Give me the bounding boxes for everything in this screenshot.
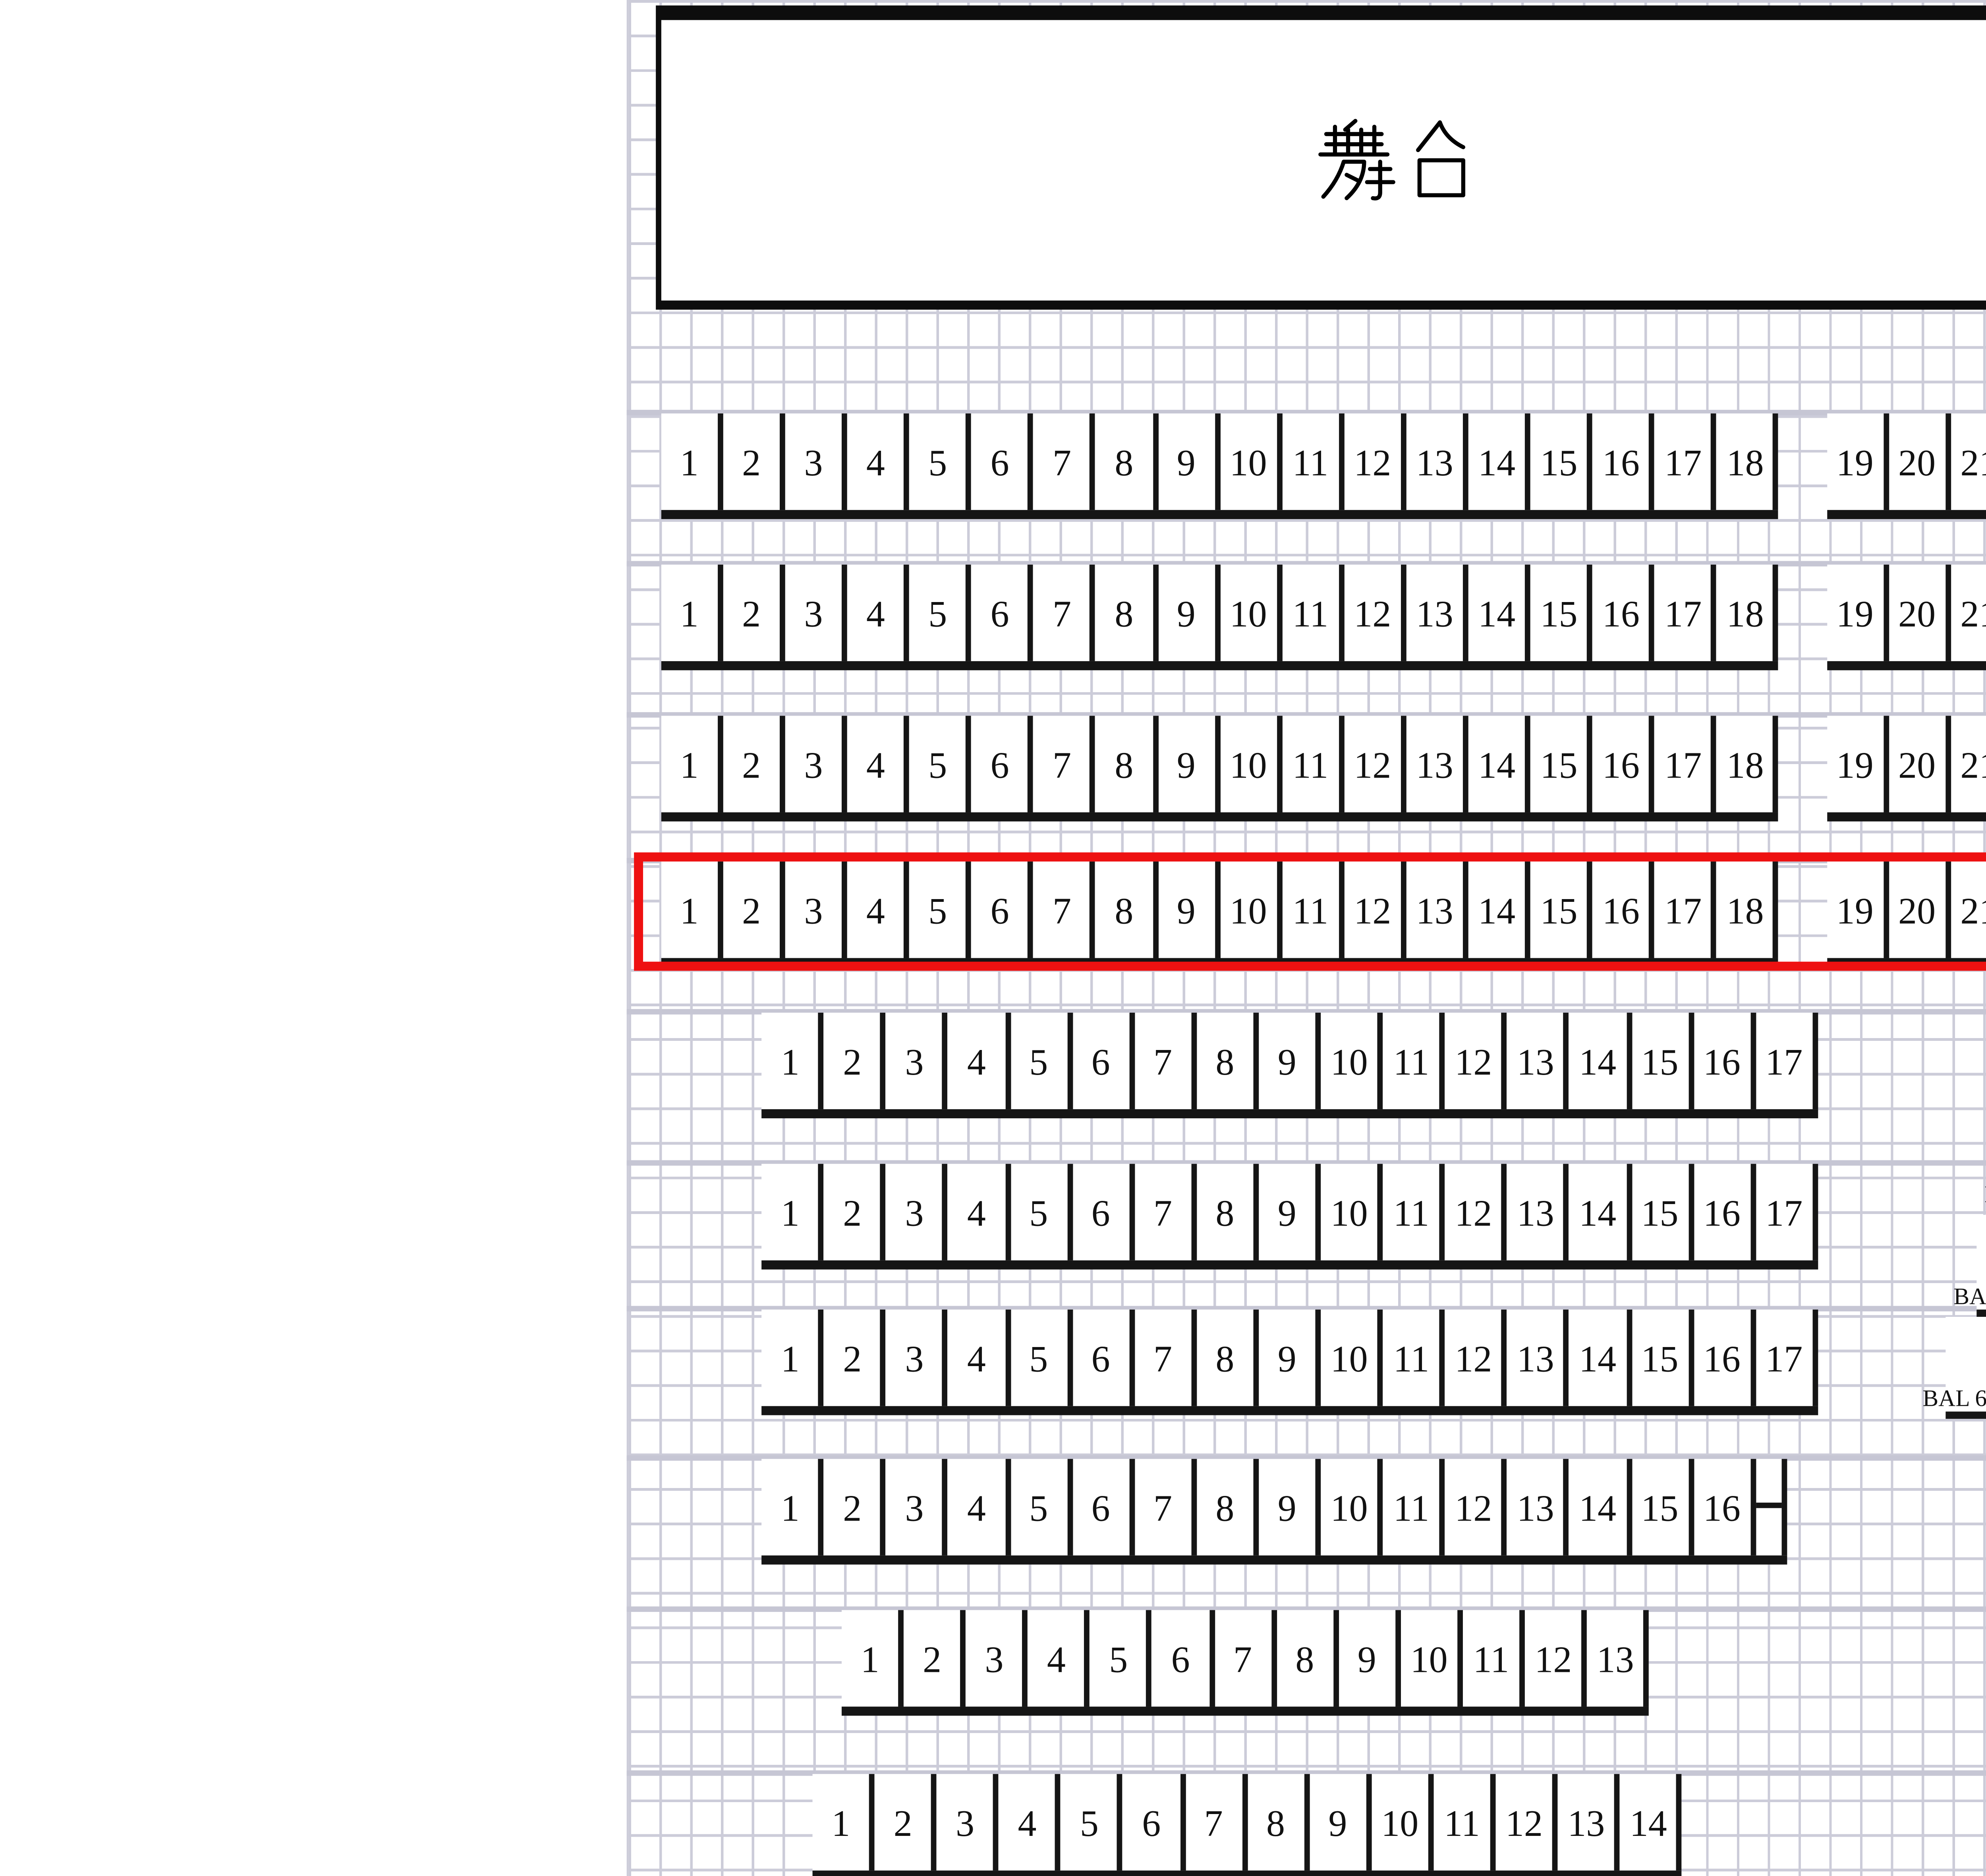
seat-row-5-7[interactable]: 7 — [1134, 1013, 1196, 1109]
seat-row-9-6[interactable]: 6 — [1152, 1610, 1214, 1706]
seat-row-6-13[interactable]: 13 — [1507, 1164, 1569, 1260]
seat-row-2-21[interactable]: 21 — [1951, 565, 1986, 661]
seat-row-6-8[interactable]: 8 — [1197, 1164, 1259, 1260]
seat-row-8-15[interactable]: 15 — [1631, 1459, 1693, 1556]
seat-row-1-21[interactable]: 21 — [1951, 413, 1986, 510]
seat-row-1-3[interactable]: 3 — [785, 413, 847, 510]
seat-row-1-8[interactable]: 8 — [1096, 413, 1158, 510]
seat-row-9-3[interactable]: 3 — [966, 1610, 1028, 1706]
seat-row-1-18[interactable]: 18 — [1717, 413, 1779, 510]
seat-row-10-14[interactable]: 14 — [1620, 1774, 1682, 1870]
seat-row-2-5[interactable]: 5 — [909, 565, 971, 661]
seat-row-1-17[interactable]: 17 — [1655, 413, 1717, 510]
seat-row-3-5[interactable]: 5 — [909, 716, 971, 812]
seat-row-6-17[interactable]: 17 — [1756, 1164, 1818, 1260]
seat-group-row-3: 123456789101112131415161718 — [661, 716, 1779, 821]
stage-kanji-icon — [1312, 117, 1486, 204]
seat-row-2-2[interactable]: 2 — [723, 565, 785, 661]
seat-row-5-2[interactable]: 2 — [824, 1013, 886, 1109]
seat-row-6-14[interactable]: 14 — [1569, 1164, 1631, 1260]
seat-group-row-10: 1234567891011121314 — [813, 1774, 1682, 1876]
seat-row-10-5[interactable]: 5 — [1061, 1774, 1123, 1870]
seat-row-3-17[interactable]: 17 — [1655, 716, 1717, 812]
seat-row-10-12[interactable]: 12 — [1496, 1774, 1558, 1870]
seat-row-2-16[interactable]: 16 — [1593, 565, 1655, 661]
seat-row-6-5[interactable]: 5 — [1010, 1164, 1072, 1260]
seat-row-3-3[interactable]: 3 — [785, 716, 847, 812]
seat-row-2-20[interactable]: 20 — [1889, 565, 1951, 661]
seat-row-3-12[interactable]: 12 — [1344, 716, 1406, 812]
seat-group-row-8: 12345678910111213141516 — [762, 1459, 1787, 1565]
seat-row-8-16[interactable]: 16 — [1694, 1459, 1756, 1556]
seat-row-7-16[interactable]: 16 — [1694, 1310, 1756, 1406]
seat-row-3-16[interactable]: 16 — [1593, 716, 1655, 812]
seat-row-8-10[interactable]: 10 — [1321, 1459, 1383, 1556]
seat-row-5-5[interactable]: 5 — [1010, 1013, 1072, 1109]
seat-group-row-2: 123456789101112131415161718 — [661, 565, 1779, 670]
seat-row-1-7[interactable]: 7 — [1034, 413, 1095, 510]
seat-row-7-17[interactable]: 17 — [1756, 1310, 1818, 1406]
seat-row-1-11[interactable]: 11 — [1282, 413, 1344, 510]
seat-row-2-6[interactable]: 6 — [972, 565, 1034, 661]
seat-row-2-12[interactable]: 12 — [1344, 565, 1406, 661]
seat-row-7-14[interactable]: 14 — [1569, 1310, 1631, 1406]
row-8-end-notch — [1756, 1459, 1787, 1556]
seat-row-7-15[interactable]: 15 — [1631, 1310, 1693, 1406]
seat-row-10-3[interactable]: 3 — [937, 1774, 999, 1870]
seat-row-8-4[interactable]: 4 — [948, 1459, 1010, 1556]
seat-row-8-11[interactable]: 11 — [1383, 1459, 1445, 1556]
seat-row-3-19[interactable]: 19 — [1826, 716, 1888, 812]
seat-row-8-3[interactable]: 3 — [886, 1459, 948, 1556]
seat-row-2-7[interactable]: 7 — [1034, 565, 1095, 661]
seat-row-1-12[interactable]: 12 — [1344, 413, 1406, 510]
seat-row-6-10[interactable]: 10 — [1321, 1164, 1383, 1260]
seat-group-row-7: 1234567891011121314151617 — [762, 1310, 1818, 1415]
seat-row-7-7[interactable]: 7 — [1134, 1310, 1196, 1406]
seat-row-5-13[interactable]: 13 — [1507, 1013, 1569, 1109]
seat-row-5-14[interactable]: 14 — [1569, 1013, 1631, 1109]
seat-row-10-7[interactable]: 7 — [1185, 1774, 1247, 1870]
seat-row-6-6[interactable]: 6 — [1072, 1164, 1134, 1260]
seat-row-5-12[interactable]: 12 — [1445, 1013, 1507, 1109]
seat-row-5-3[interactable]: 3 — [886, 1013, 948, 1109]
seat-row-10-1[interactable]: 1 — [813, 1774, 875, 1870]
seat-row-7-13[interactable]: 13 — [1507, 1310, 1569, 1406]
seat-row-5-10[interactable]: 10 — [1321, 1013, 1383, 1109]
seat-row-6-7[interactable]: 7 — [1134, 1164, 1196, 1260]
seat-row-9-13[interactable]: 13 — [1587, 1610, 1649, 1706]
seat-row-2-1[interactable]: 1 — [661, 565, 723, 661]
seat-group-row-1-right: 19202122 — [1826, 413, 1986, 519]
seat-row-6-4[interactable]: 4 — [948, 1164, 1010, 1260]
seat-row-9-2[interactable]: 2 — [904, 1610, 966, 1706]
seat-row-1-15[interactable]: 15 — [1530, 413, 1592, 510]
seat-row-2-19[interactable]: 19 — [1826, 565, 1888, 661]
seat-row-2-17[interactable]: 17 — [1655, 565, 1717, 661]
seat-group-row-2-right: 192021 — [1826, 565, 1986, 670]
stage-box: 舞台 — [656, 6, 1986, 310]
seat-row-5-9[interactable]: 9 — [1259, 1013, 1321, 1109]
seat-row-9-10[interactable]: 10 — [1401, 1610, 1462, 1706]
seat-row-10-10[interactable]: 10 — [1372, 1774, 1433, 1870]
seat-row-7-4[interactable]: 4 — [948, 1310, 1010, 1406]
seat-row-9-7[interactable]: 7 — [1214, 1610, 1276, 1706]
seat-row-3-6[interactable]: 6 — [972, 716, 1034, 812]
seat-row-3-2[interactable]: 2 — [723, 716, 785, 812]
balcony-label-6: BAL 6 — [1902, 1386, 1986, 1410]
seat-row-3-7[interactable]: 7 — [1034, 716, 1095, 812]
seat-row-2-9[interactable]: 9 — [1158, 565, 1220, 661]
seat-row-7-11[interactable]: 11 — [1383, 1310, 1445, 1406]
highlight-box — [634, 852, 1986, 971]
seat-row-6-1[interactable]: 1 — [762, 1164, 824, 1260]
balcony-label-4: BAL 4 — [1964, 1182, 1986, 1206]
seat-row-5-1[interactable]: 1 — [762, 1013, 824, 1109]
seat-row-3-11[interactable]: 11 — [1282, 716, 1344, 812]
seat-row-5-17[interactable]: 17 — [1756, 1013, 1818, 1109]
seat-row-6-15[interactable]: 15 — [1631, 1164, 1693, 1260]
seat-row-7-5[interactable]: 5 — [1010, 1310, 1072, 1406]
seat-row-5-16[interactable]: 16 — [1694, 1013, 1756, 1109]
seat-row-7-1[interactable]: 1 — [762, 1310, 824, 1406]
seat-row-3-1[interactable]: 1 — [661, 716, 723, 812]
seat-row-1-2[interactable]: 2 — [723, 413, 785, 510]
seat-row-2-4[interactable]: 4 — [847, 565, 909, 661]
seat-row-2-8[interactable]: 8 — [1096, 565, 1158, 661]
seat-row-3-15[interactable]: 15 — [1530, 716, 1592, 812]
seat-row-5-15[interactable]: 15 — [1631, 1013, 1693, 1109]
seat-row-8-8[interactable]: 8 — [1197, 1459, 1259, 1556]
seat-row-2-15[interactable]: 15 — [1530, 565, 1592, 661]
seating-chart: 舞台 1234567891011121314151617181920212212… — [0, 0, 1986, 1876]
seat-row-3-8[interactable]: 8 — [1096, 716, 1158, 812]
seat-row-1-19[interactable]: 19 — [1826, 413, 1888, 510]
seat-row-8-1[interactable]: 1 — [762, 1459, 824, 1556]
seat-row-8-2[interactable]: 2 — [824, 1459, 886, 1556]
seat-row-1-20[interactable]: 20 — [1889, 413, 1951, 510]
seat-row-7-12[interactable]: 12 — [1445, 1310, 1507, 1406]
seat-row-3-14[interactable]: 14 — [1468, 716, 1530, 812]
seat-row-3-9[interactable]: 9 — [1158, 716, 1220, 812]
seat-row-7-8[interactable]: 8 — [1197, 1310, 1259, 1406]
seat-row-1-5[interactable]: 5 — [909, 413, 971, 510]
seat-row-2-3[interactable]: 3 — [785, 565, 847, 661]
seat-row-7-10[interactable]: 10 — [1321, 1310, 1383, 1406]
seat-row-8-13[interactable]: 13 — [1507, 1459, 1569, 1556]
seat-row-3-20[interactable]: 20 — [1889, 716, 1951, 812]
seat-group-row-6: 1234567891011121314151617 — [762, 1164, 1818, 1270]
seat-row-10-2[interactable]: 2 — [875, 1774, 937, 1870]
seat-row-1-6[interactable]: 6 — [972, 413, 1034, 510]
seat-row-10-11[interactable]: 11 — [1433, 1774, 1495, 1870]
seat-group-row-3-right: 192021 — [1826, 716, 1986, 821]
seat-row-6-11[interactable]: 11 — [1383, 1164, 1445, 1260]
seat-row-9-8[interactable]: 8 — [1277, 1610, 1339, 1706]
seat-row-6-16[interactable]: 16 — [1694, 1164, 1756, 1260]
seat-row-2-10[interactable]: 10 — [1220, 565, 1282, 661]
seat-group-row-9: 12345678910111213 — [842, 1610, 1649, 1716]
seat-row-10-8[interactable]: 8 — [1247, 1774, 1309, 1870]
seat-row-6-12[interactable]: 12 — [1445, 1164, 1507, 1260]
seat-row-7-3[interactable]: 3 — [886, 1310, 948, 1406]
seat-row-10-6[interactable]: 6 — [1123, 1774, 1185, 1870]
seat-row-3-21[interactable]: 21 — [1951, 716, 1986, 812]
balcony-label-5: BAL 5 — [1933, 1284, 1986, 1308]
seat-row-5-11[interactable]: 11 — [1383, 1013, 1445, 1109]
seat-row-8-7[interactable]: 7 — [1134, 1459, 1196, 1556]
seat-row-10-13[interactable]: 13 — [1558, 1774, 1620, 1870]
seat-row-9-11[interactable]: 11 — [1463, 1610, 1525, 1706]
seat-row-5-8[interactable]: 8 — [1197, 1013, 1259, 1109]
seat-row-3-13[interactable]: 13 — [1406, 716, 1468, 812]
seat-row-3-4[interactable]: 4 — [847, 716, 909, 812]
seat-group-row-1: 123456789101112131415161718 — [661, 413, 1779, 519]
seat-row-8-12[interactable]: 12 — [1445, 1459, 1507, 1556]
seat-row-1-16[interactable]: 16 — [1593, 413, 1655, 510]
seat-row-8-9[interactable]: 9 — [1259, 1459, 1321, 1556]
seat-row-7-2[interactable]: 2 — [824, 1310, 886, 1406]
seat-row-1-9[interactable]: 9 — [1158, 413, 1220, 510]
seat-row-5-6[interactable]: 6 — [1072, 1013, 1134, 1109]
seat-row-9-4[interactable]: 4 — [1028, 1610, 1090, 1706]
seat-row-7-6[interactable]: 6 — [1072, 1310, 1134, 1406]
seat-row-10-4[interactable]: 4 — [999, 1774, 1061, 1870]
seat-row-1-13[interactable]: 13 — [1406, 413, 1468, 510]
seat-row-9-1[interactable]: 1 — [842, 1610, 904, 1706]
seat-row-5-4[interactable]: 4 — [948, 1013, 1010, 1109]
seat-row-3-18[interactable]: 18 — [1717, 716, 1779, 812]
seat-row-2-14[interactable]: 14 — [1468, 565, 1530, 661]
seat-row-1-1[interactable]: 1 — [661, 413, 723, 510]
seat-row-10-9[interactable]: 9 — [1310, 1774, 1372, 1870]
notch-middle-bar — [1756, 1503, 1781, 1508]
seat-row-1-14[interactable]: 14 — [1468, 413, 1530, 510]
seat-row-2-13[interactable]: 13 — [1406, 565, 1468, 661]
seat-row-8-14[interactable]: 14 — [1569, 1459, 1631, 1556]
seat-row-7-9[interactable]: 9 — [1259, 1310, 1321, 1406]
seat-row-6-2[interactable]: 2 — [824, 1164, 886, 1260]
seat-row-9-9[interactable]: 9 — [1339, 1610, 1401, 1706]
seat-row-6-9[interactable]: 9 — [1259, 1164, 1321, 1260]
seat-row-8-5[interactable]: 5 — [1010, 1459, 1072, 1556]
seat-row-9-5[interactable]: 5 — [1090, 1610, 1152, 1706]
seat-row-6-3[interactable]: 3 — [886, 1164, 948, 1260]
seat-group-row-5: 1234567891011121314151617 — [762, 1013, 1818, 1118]
seat-row-9-12[interactable]: 12 — [1525, 1610, 1587, 1706]
seat-row-8-6[interactable]: 6 — [1072, 1459, 1134, 1556]
seat-row-3-10[interactable]: 10 — [1220, 716, 1282, 812]
seat-row-1-10[interactable]: 10 — [1220, 413, 1282, 510]
seat-row-1-4[interactable]: 4 — [847, 413, 909, 510]
seat-row-2-11[interactable]: 11 — [1282, 565, 1344, 661]
seat-row-2-18[interactable]: 18 — [1717, 565, 1779, 661]
